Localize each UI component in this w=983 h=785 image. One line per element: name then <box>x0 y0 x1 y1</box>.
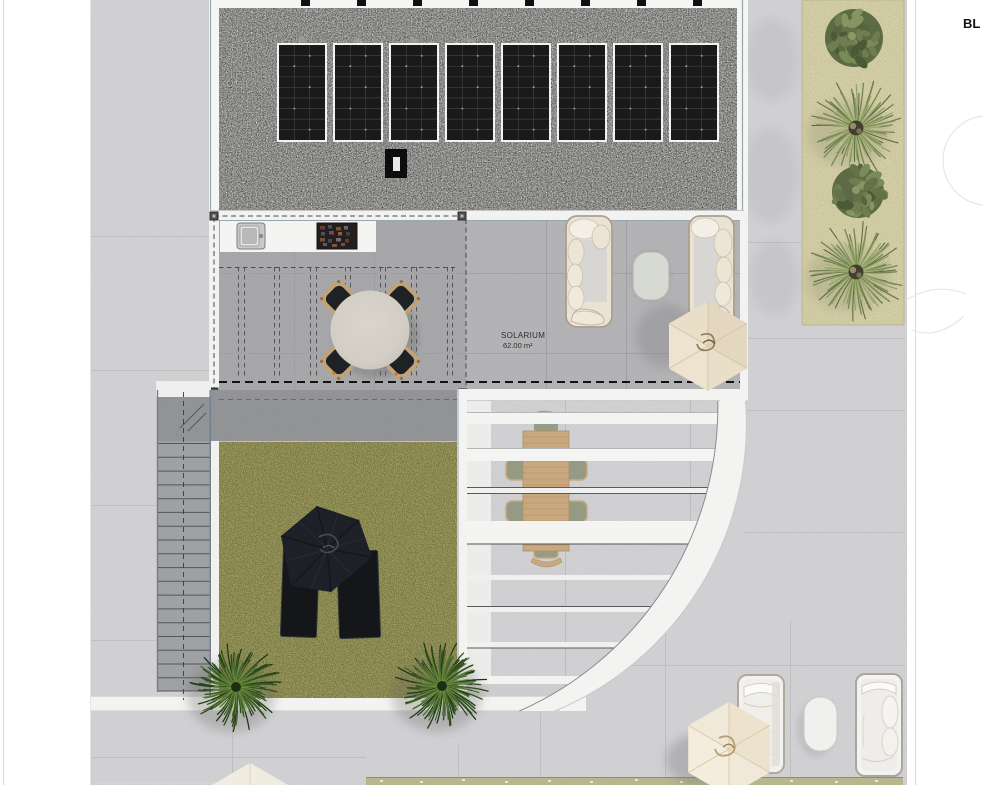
svg-text:62.00 m²: 62.00 m² <box>503 341 533 350</box>
svg-text:SOLARIUM: SOLARIUM <box>501 331 545 340</box>
svg-text:BL: BL <box>963 16 980 31</box>
